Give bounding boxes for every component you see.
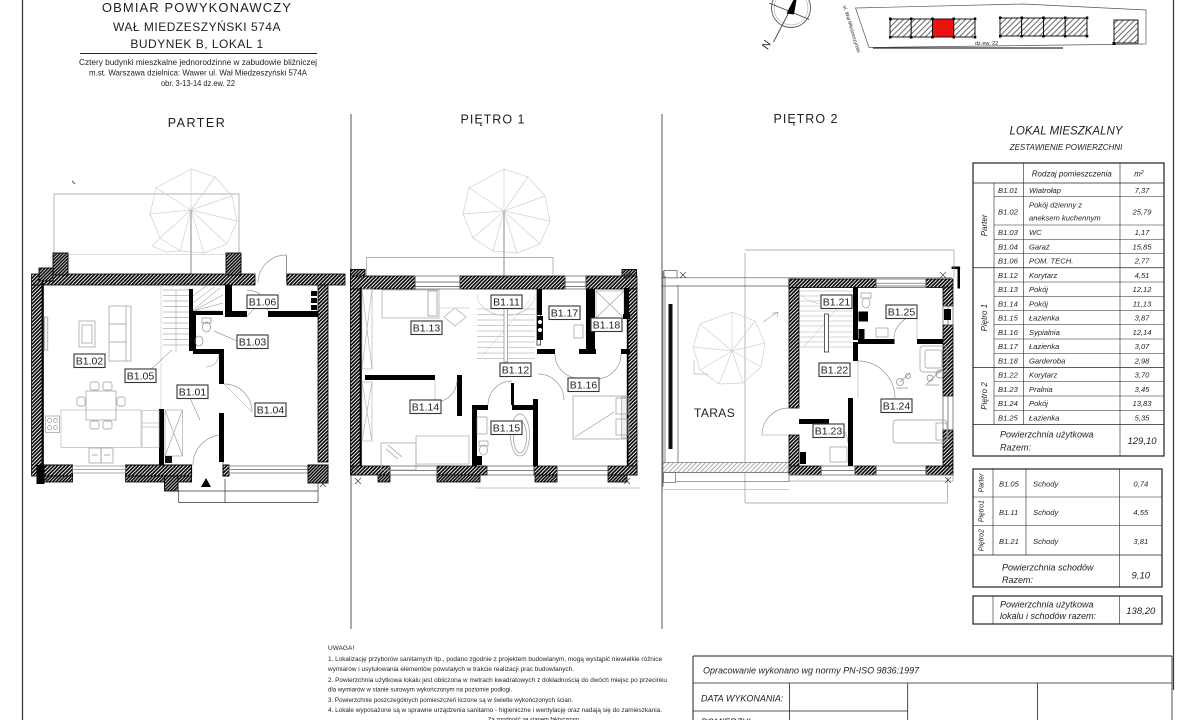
svg-text:B1.23: B1.23 xyxy=(998,385,1019,394)
svg-text:B1.02: B1.02 xyxy=(998,208,1019,217)
svg-text:B1.24: B1.24 xyxy=(883,401,911,413)
svg-text:B1.06: B1.06 xyxy=(998,257,1019,266)
svg-text:obr. 3-13-14 dz.ew. 22: obr. 3-13-14 dz.ew. 22 xyxy=(161,79,235,88)
svg-text:DATA WYKONANIA:: DATA WYKONANIA: xyxy=(701,694,784,704)
svg-text:25,79: 25,79 xyxy=(1131,208,1152,217)
svg-text:Łazienka: Łazienka xyxy=(1029,314,1059,323)
svg-text:B1.15: B1.15 xyxy=(493,423,521,435)
svg-text:B1.23: B1.23 xyxy=(815,426,843,438)
svg-text:Pokój dzienny z: Pokój dzienny z xyxy=(1029,201,1082,210)
svg-text:Powierzchnia użytkowa: Powierzchnia użytkowa xyxy=(1000,430,1094,440)
svg-text:ZESTAWIENIE POWIERZCHNI: ZESTAWIENIE POWIERZCHNI xyxy=(1009,143,1123,152)
svg-text:dla wymiarów w stanie surowym: dla wymiarów w stanie surowym wykończony… xyxy=(328,687,512,694)
svg-text:B1.17: B1.17 xyxy=(998,342,1019,351)
svg-text:Razem:: Razem: xyxy=(1000,443,1032,453)
svg-text:Powierzchnia użytkowa: Powierzchnia użytkowa xyxy=(1000,600,1094,610)
svg-text:Korytarz: Korytarz xyxy=(1029,371,1057,380)
svg-text:Łazienka: Łazienka xyxy=(1029,413,1059,422)
svg-text:B1.06: B1.06 xyxy=(249,297,277,309)
svg-text:4,55: 4,55 xyxy=(1133,508,1149,517)
svg-text:Garaż: Garaż xyxy=(1029,242,1050,251)
svg-text:OBMIAR POWYKONAWCZY: OBMIAR POWYKONAWCZY xyxy=(102,0,292,15)
svg-text:POM. TECH.: POM. TECH. xyxy=(1029,257,1073,266)
svg-text:B1.02: B1.02 xyxy=(76,356,104,368)
svg-text:Opracowanie wykonano wg normy: Opracowanie wykonano wg normy PN-ISO 983… xyxy=(703,666,920,676)
svg-text:B1.04: B1.04 xyxy=(998,242,1018,251)
svg-text:Schody: Schody xyxy=(1033,508,1060,517)
svg-text:Piętro1: Piętro1 xyxy=(979,500,986,522)
svg-text:B1.11: B1.11 xyxy=(493,297,520,309)
svg-text:B1.01: B1.01 xyxy=(998,186,1018,195)
svg-text:Za zgodność ze stanem faktyczn: Za zgodność ze stanem faktycznym xyxy=(488,717,579,720)
svg-text:B1.25: B1.25 xyxy=(998,413,1019,422)
svg-text:Piętro 1: Piętro 1 xyxy=(980,304,989,332)
svg-text:4,51: 4,51 xyxy=(1135,271,1150,280)
svg-text:WC: WC xyxy=(1029,228,1042,237)
svg-text:3. Powierzchnie poszczególnych: 3. Powierzchnie poszczególnych pomieszcz… xyxy=(328,697,573,704)
svg-text:Garderoba: Garderoba xyxy=(1029,356,1065,365)
svg-text:B1.16: B1.16 xyxy=(570,380,598,392)
svg-text:B1.12: B1.12 xyxy=(998,271,1019,280)
svg-text:B1.01: B1.01 xyxy=(179,387,207,399)
svg-text:B1.14: B1.14 xyxy=(998,299,1018,308)
svg-text:5,35: 5,35 xyxy=(1135,413,1151,422)
svg-text:3,81: 3,81 xyxy=(1133,537,1148,546)
svg-text:Cztery budynki mieszkalne jedn: Cztery budynki mieszkalne jednorodzinne … xyxy=(79,58,317,67)
svg-text:lokalu i schodów razem:: lokalu i schodów razem: xyxy=(1000,611,1097,621)
svg-text:129,10: 129,10 xyxy=(1127,436,1157,447)
svg-text:11,13: 11,13 xyxy=(1133,299,1152,308)
svg-text:0,74: 0,74 xyxy=(1133,480,1148,489)
svg-text:B1.21: B1.21 xyxy=(823,297,851,309)
svg-text:Korytarz: Korytarz xyxy=(1029,271,1057,280)
svg-text:B1.13: B1.13 xyxy=(413,323,441,335)
svg-text:Piętro2: Piętro2 xyxy=(979,529,986,551)
svg-text:B1.05: B1.05 xyxy=(127,371,155,383)
svg-text:LOKAL MIESZKALNY: LOKAL MIESZKALNY xyxy=(1010,126,1124,138)
svg-text:Pokój: Pokój xyxy=(1029,285,1048,294)
svg-text:Parter: Parter xyxy=(980,214,989,236)
svg-text:Pokój: Pokój xyxy=(1029,399,1048,408)
svg-text:15,85: 15,85 xyxy=(1132,242,1152,251)
svg-text:Rodzaj pomieszczenia: Rodzaj pomieszczenia xyxy=(1032,170,1113,179)
svg-text:Razem:: Razem: xyxy=(1002,575,1034,585)
svg-text:Schody: Schody xyxy=(1033,537,1060,546)
svg-text:Powierzchnia schodów: Powierzchnia schodów xyxy=(1002,563,1094,573)
svg-text:B1.22: B1.22 xyxy=(821,365,849,377)
svg-text:Piętro 2: Piętro 2 xyxy=(980,382,989,410)
svg-text:PIĘTRO 1: PIĘTRO 1 xyxy=(461,113,526,127)
svg-text:12,12: 12,12 xyxy=(1132,285,1152,294)
svg-text:B1.14: B1.14 xyxy=(412,402,440,414)
svg-text:PIĘTRO 2: PIĘTRO 2 xyxy=(774,112,839,126)
svg-text:Schody: Schody xyxy=(1033,480,1060,489)
svg-text:13,83: 13,83 xyxy=(1132,399,1152,408)
svg-text:138,20: 138,20 xyxy=(1126,606,1156,617)
svg-text:m2: m2 xyxy=(1134,170,1144,179)
svg-text:dz.ew. 22: dz.ew. 22 xyxy=(975,41,998,47)
svg-text:B1.13: B1.13 xyxy=(998,285,1019,294)
svg-text:B1.21: B1.21 xyxy=(999,537,1019,546)
svg-text:B1.16: B1.16 xyxy=(998,328,1019,337)
svg-text:3,87: 3,87 xyxy=(1135,314,1151,323)
svg-text:7,37: 7,37 xyxy=(1135,186,1151,195)
svg-text:wymiarów i usytułowania elemen: wymiarów i usytułowania elementów powsta… xyxy=(327,666,574,673)
svg-text:B1.24: B1.24 xyxy=(998,399,1018,408)
svg-text:B1.18: B1.18 xyxy=(593,320,621,332)
svg-text:Wiatrołap: Wiatrołap xyxy=(1029,186,1061,195)
svg-text:2,77: 2,77 xyxy=(1134,257,1151,266)
svg-text:WAŁ MIEDZESZYŃSKI 574A: WAŁ MIEDZESZYŃSKI 574A xyxy=(113,19,281,34)
svg-text:ul. Wał Miedzeszyński: ul. Wał Miedzeszyński xyxy=(841,5,861,54)
svg-text:m.st. Warszawa dzielnica: Wawe: m.st. Warszawa dzielnica: Wawer ul. Wał … xyxy=(89,69,308,78)
svg-text:B1.25: B1.25 xyxy=(888,307,916,319)
svg-text:B1.18: B1.18 xyxy=(998,356,1019,365)
svg-text:1. Lokalizację przyborów sanit: 1. Lokalizację przyborów sanitarnych itp… xyxy=(328,656,662,663)
svg-text:PARTER: PARTER xyxy=(168,116,227,130)
svg-text:3,45: 3,45 xyxy=(1135,385,1151,394)
svg-text:12,14: 12,14 xyxy=(1132,328,1151,337)
svg-text:Sypialnia: Sypialnia xyxy=(1029,328,1060,337)
svg-text:Łazienka: Łazienka xyxy=(1029,342,1059,351)
svg-text:UWAGA!: UWAGA! xyxy=(328,645,354,652)
svg-text:2. Powierzchnia użytkowa lokal: 2. Powierzchnia użytkowa lokalu jest obl… xyxy=(328,677,667,684)
svg-text:BUDYNEK B, LOKAL 1: BUDYNEK B, LOKAL 1 xyxy=(130,37,263,51)
svg-text:B1.03: B1.03 xyxy=(239,337,267,349)
svg-text:B1.11: B1.11 xyxy=(999,508,1018,517)
svg-text:3,70: 3,70 xyxy=(1135,371,1151,380)
svg-text:TARAS: TARAS xyxy=(694,406,735,420)
svg-text:B1.05: B1.05 xyxy=(999,480,1020,489)
svg-text:3,07: 3,07 xyxy=(1135,342,1151,351)
svg-text:9,10: 9,10 xyxy=(1132,571,1151,582)
svg-text:B1.12: B1.12 xyxy=(502,365,530,377)
svg-text:Parter: Parter xyxy=(979,473,986,493)
svg-text:Pokój: Pokój xyxy=(1029,299,1048,308)
svg-text:4. Lokale wyposażone są w spra: 4. Lokale wyposażone są w sprawne urządz… xyxy=(328,707,662,714)
svg-text:2,98: 2,98 xyxy=(1134,356,1151,365)
svg-text:B1.17: B1.17 xyxy=(551,308,579,320)
svg-text:B1.04: B1.04 xyxy=(257,405,285,417)
svg-text:B1.03: B1.03 xyxy=(998,228,1019,237)
svg-text:B1.15: B1.15 xyxy=(998,314,1019,323)
svg-text:1,17: 1,17 xyxy=(1135,228,1151,237)
svg-text:B1.22: B1.22 xyxy=(998,371,1019,380)
svg-text:N: N xyxy=(760,39,774,51)
svg-text:aneksem kuchennym: aneksem kuchennym xyxy=(1029,214,1101,223)
svg-text:Pralnia: Pralnia xyxy=(1029,385,1053,394)
